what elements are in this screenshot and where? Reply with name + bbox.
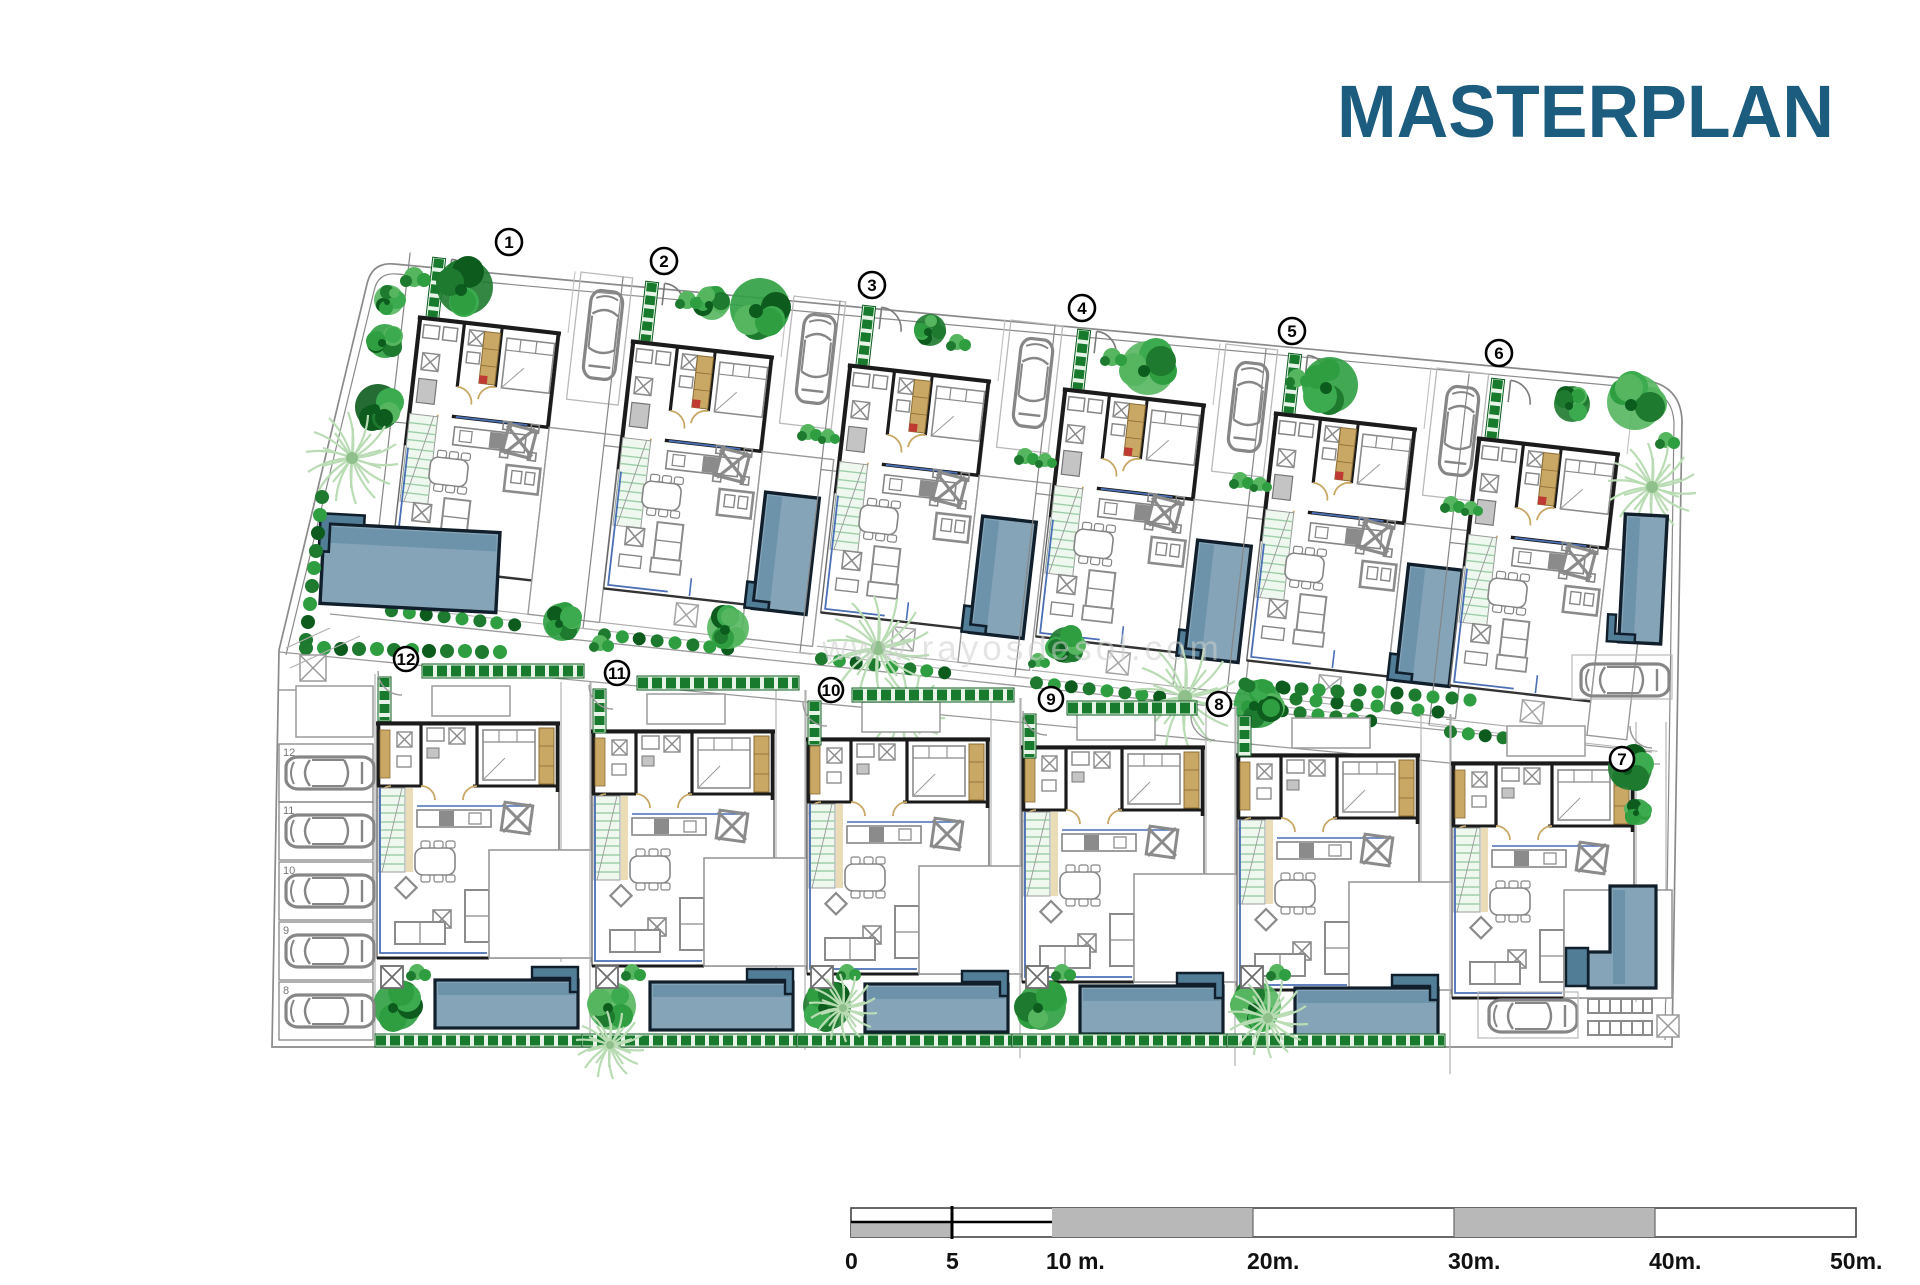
svg-text:2: 2 <box>659 252 668 271</box>
svg-text:5: 5 <box>946 1248 959 1274</box>
svg-text:8: 8 <box>1214 695 1223 714</box>
svg-text:9: 9 <box>283 925 289 937</box>
svg-text:0: 0 <box>845 1248 858 1274</box>
svg-text:50m.: 50m. <box>1830 1248 1882 1274</box>
svg-text:3: 3 <box>867 276 876 295</box>
svg-text:5: 5 <box>1287 322 1296 341</box>
svg-text:1: 1 <box>504 233 513 252</box>
svg-text:10 m.: 10 m. <box>1046 1248 1105 1274</box>
svg-text:8: 8 <box>283 985 289 997</box>
svg-text:7: 7 <box>1617 750 1626 769</box>
svg-text:11: 11 <box>608 664 626 683</box>
svg-text:6: 6 <box>1494 344 1503 363</box>
svg-text:10: 10 <box>822 681 841 700</box>
svg-text:MASTERPLAN: MASTERPLAN <box>1337 70 1834 153</box>
svg-text:20m.: 20m. <box>1247 1248 1299 1274</box>
svg-text:www.rayosdesol.com: www.rayosdesol.com <box>821 629 1223 668</box>
svg-text:40m.: 40m. <box>1649 1248 1701 1274</box>
svg-text:30m.: 30m. <box>1448 1248 1500 1274</box>
svg-text:4: 4 <box>1077 299 1087 318</box>
svg-text:12: 12 <box>397 650 416 669</box>
svg-text:9: 9 <box>1046 690 1055 709</box>
